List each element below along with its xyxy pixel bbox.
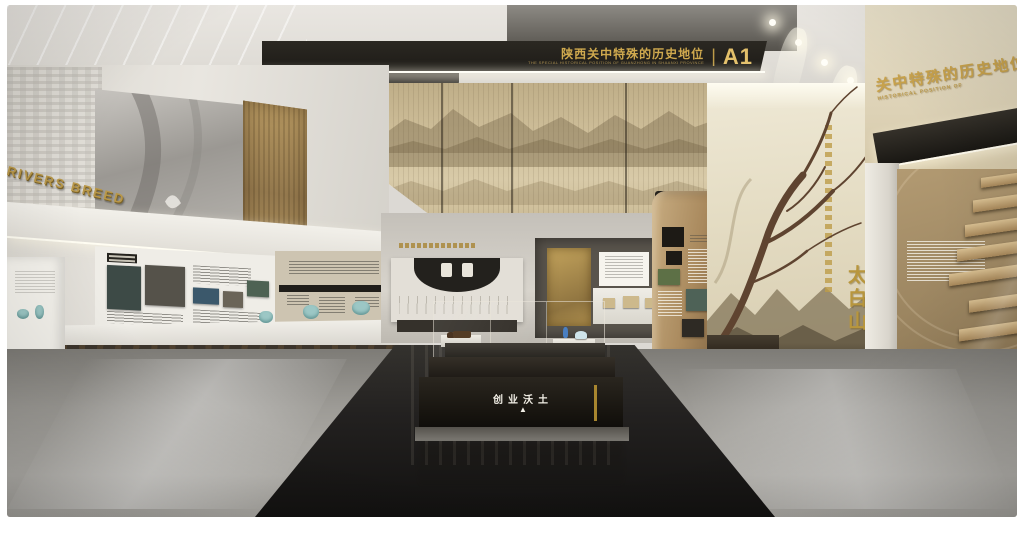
island-step-middle [429, 357, 615, 379]
tree-branch-sculpture [707, 83, 885, 375]
exhibit-body-text [193, 265, 251, 286]
celadon-vessel [303, 305, 319, 319]
relic-image [462, 263, 473, 277]
exhibit-photo [223, 291, 243, 308]
main-sign-divider: | [711, 46, 716, 67]
alcove-sign-text [605, 256, 643, 280]
blue-vase [563, 327, 568, 338]
timeline-panel [275, 251, 395, 329]
column-body-text [658, 291, 682, 317]
wall-gold-caption [399, 243, 477, 248]
landscape-photo [658, 269, 680, 285]
artifact-photo [682, 319, 704, 337]
exhibit-photo [247, 280, 269, 297]
timeline-band [279, 285, 391, 292]
bronze-chariot-model [447, 329, 473, 341]
scene-stage: 陕西关中特殊的历史地位 THE SPECIAL HISTORICAL POSIT… [7, 5, 1017, 517]
exhibit-title-label [107, 253, 137, 264]
island-title-text: 创业沃土 [405, 391, 641, 406]
right-ink-mural-wall: 太白山 [707, 83, 885, 375]
main-sign-subtitle-en: THE SPECIAL HISTORICAL POSITION OF GUANZ… [528, 61, 704, 65]
exhibit-photo [145, 265, 185, 307]
celadon-vessel [352, 301, 370, 315]
exhibit-photo [193, 287, 219, 304]
main-sign-title-zh: 陕西关中特殊的历史地位 [561, 48, 704, 61]
central-display-island: 创业沃土 ▲ [405, 295, 641, 485]
semicircle-graphic [414, 258, 500, 292]
main-sign-code: A1 [723, 44, 753, 70]
island-floor-reflection [419, 443, 623, 487]
celadon-artifact [35, 305, 44, 319]
celadon-vessel [259, 311, 273, 323]
spotlight-icon [821, 59, 828, 66]
relic-image [441, 263, 452, 277]
spotlight-icon [769, 19, 776, 26]
case-graphic [15, 271, 55, 293]
framed-photo [666, 251, 682, 265]
far-right-gold-title: 关中特殊的历史地位 HISTORICAL POSITION OF [874, 51, 1017, 102]
framed-photo [662, 227, 684, 247]
timeline-entry-text [319, 297, 345, 313]
timeline-intro-text [289, 261, 379, 275]
triangle-marker: ▲ [405, 405, 641, 414]
celadon-artifact [17, 309, 29, 319]
island-plinth [415, 427, 629, 441]
exhibit-photo [107, 265, 141, 311]
porcelain-jar [575, 331, 587, 339]
main-sign-text-block: 陕西关中特殊的历史地位 THE SPECIAL HISTORICAL POSIT… [528, 48, 704, 65]
timeline-entry-text [287, 295, 309, 305]
museum-hall-render: 陕西关中特殊的历史地位 THE SPECIAL HISTORICAL POSIT… [0, 0, 1024, 535]
alcove-vertical-sign [599, 252, 649, 286]
